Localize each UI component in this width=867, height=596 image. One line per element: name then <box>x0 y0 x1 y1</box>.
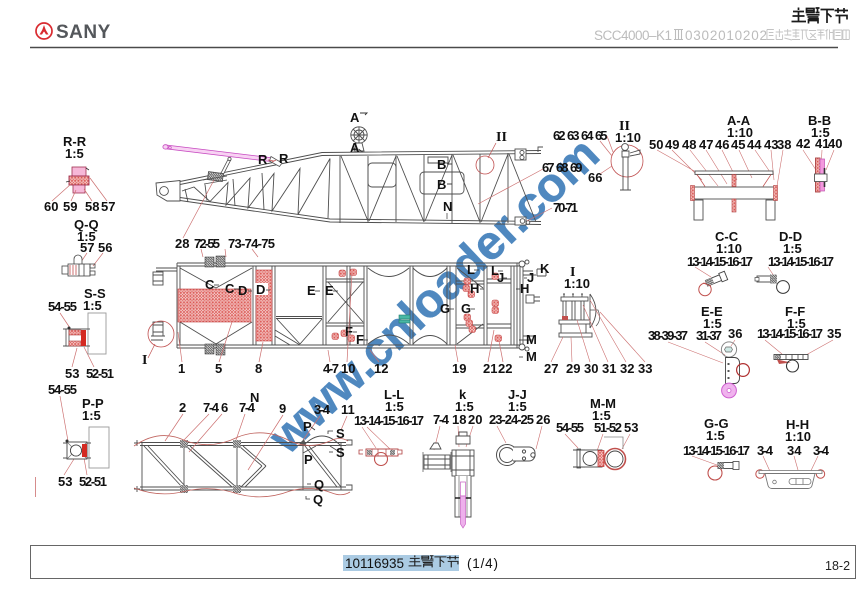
svg-text:3-4: 3-4 <box>757 443 774 458</box>
svg-text:10: 10 <box>341 361 355 376</box>
svg-text:A: A <box>350 110 360 125</box>
svg-text:D: D <box>238 283 247 298</box>
svg-text:9: 9 <box>279 401 286 416</box>
svg-text:31: 31 <box>602 361 616 376</box>
svg-text:5: 5 <box>215 361 222 376</box>
svg-text:50: 50 <box>649 137 663 152</box>
svg-text:B: B <box>437 177 446 192</box>
svg-text:11: 11 <box>341 402 355 417</box>
svg-text:13-14-15-16-17: 13-14-15-16-17 <box>683 443 750 458</box>
svg-text:68: 68 <box>556 160 569 175</box>
svg-text:40: 40 <box>828 136 842 151</box>
svg-text:7-4: 7-4 <box>239 400 256 415</box>
svg-text:H: H <box>470 281 479 296</box>
svg-text:4-7: 4-7 <box>323 361 339 376</box>
svg-text:32: 32 <box>620 361 634 376</box>
svg-text:7-4: 7-4 <box>203 400 220 415</box>
svg-text:B: B <box>437 157 446 172</box>
svg-text:L: L <box>467 262 475 277</box>
svg-text:P: P <box>303 419 312 434</box>
svg-text:R: R <box>258 152 268 167</box>
svg-text:46: 46 <box>715 137 729 152</box>
svg-text:2: 2 <box>179 400 186 415</box>
svg-text:49: 49 <box>665 137 679 152</box>
svg-text:1:5: 1:5 <box>83 298 102 313</box>
svg-text:53: 53 <box>65 366 79 381</box>
svg-text:54-55: 54-55 <box>556 420 584 435</box>
svg-text:21: 21 <box>483 361 497 376</box>
svg-text:29: 29 <box>566 361 580 376</box>
svg-text:J: J <box>497 270 504 285</box>
svg-text:65: 65 <box>595 128 608 143</box>
svg-text:53: 53 <box>58 474 72 489</box>
svg-text:7-4: 7-4 <box>433 412 450 427</box>
svg-text:12: 12 <box>374 361 388 376</box>
svg-text:42: 42 <box>796 136 810 151</box>
svg-text:3-4: 3-4 <box>314 402 331 417</box>
svg-text:38: 38 <box>777 137 791 152</box>
svg-text:20: 20 <box>468 412 482 427</box>
svg-text:K: K <box>540 261 550 276</box>
svg-text:72-55: 72-55 <box>194 236 220 251</box>
svg-text:26: 26 <box>536 412 550 427</box>
svg-text:8: 8 <box>255 361 262 376</box>
svg-text:62: 62 <box>553 128 566 143</box>
svg-text:G: G <box>440 301 450 316</box>
svg-text:69: 69 <box>570 160 583 175</box>
svg-text:SANY: SANY <box>56 22 111 43</box>
svg-text:Q: Q <box>313 492 323 507</box>
svg-text:70-71: 70-71 <box>553 200 578 215</box>
svg-text:C: C <box>225 281 235 296</box>
svg-text:G: G <box>461 301 471 316</box>
svg-text:C: C <box>205 277 215 292</box>
svg-text:18-2: 18-2 <box>825 559 850 573</box>
svg-text:F: F <box>356 332 364 347</box>
svg-text:P: P <box>304 452 313 467</box>
svg-text:1:5: 1:5 <box>385 399 404 414</box>
svg-text:N: N <box>443 199 452 214</box>
svg-text:II: II <box>496 130 507 145</box>
svg-text:34: 34 <box>787 443 802 458</box>
svg-text:33: 33 <box>638 361 652 376</box>
svg-text:D: D <box>256 282 265 297</box>
svg-text:60: 60 <box>44 199 58 214</box>
svg-text:10116935: 10116935 <box>345 556 404 571</box>
svg-text:6: 6 <box>221 400 228 415</box>
svg-text:54-55: 54-55 <box>48 299 77 314</box>
svg-text:19: 19 <box>452 361 466 376</box>
svg-text:13-14-15-16-17: 13-14-15-16-17 <box>757 326 823 341</box>
svg-text:0302010202: 0302010202 <box>685 28 767 43</box>
svg-text:23-24-25: 23-24-25 <box>489 412 534 427</box>
svg-text:31-37: 31-37 <box>696 328 722 343</box>
svg-text:1:5: 1:5 <box>65 146 84 161</box>
svg-text:73-74-75: 73-74-75 <box>228 236 275 251</box>
svg-text:58: 58 <box>85 199 99 214</box>
svg-text:Q: Q <box>314 477 324 492</box>
svg-text:13-14-15-16-17: 13-14-15-16-17 <box>354 413 424 428</box>
svg-text:1: 1 <box>178 361 185 376</box>
svg-text:66: 66 <box>588 170 602 185</box>
svg-text:67: 67 <box>542 160 555 175</box>
svg-text:S: S <box>336 426 345 441</box>
svg-text:J: J <box>527 270 534 285</box>
svg-text:38-39-37: 38-39-37 <box>648 328 688 343</box>
svg-text:48: 48 <box>682 137 696 152</box>
svg-text:52-51: 52-51 <box>86 366 114 381</box>
svg-text:3-4: 3-4 <box>813 443 830 458</box>
svg-text:57: 57 <box>101 199 115 214</box>
svg-text:36: 36 <box>728 326 742 341</box>
svg-text:13-14-15-16-17: 13-14-15-16-17 <box>768 254 834 269</box>
svg-text:E: E <box>325 283 334 298</box>
svg-text:1:10: 1:10 <box>785 429 811 444</box>
svg-text:44: 44 <box>747 137 762 152</box>
svg-text:63: 63 <box>567 128 580 143</box>
svg-text:28: 28 <box>175 236 189 251</box>
svg-text:35: 35 <box>827 326 841 341</box>
svg-text:45: 45 <box>731 137 745 152</box>
svg-text:A: A <box>350 140 360 155</box>
svg-text:SCC4000–K1: SCC4000–K1 <box>594 28 672 43</box>
svg-text:M: M <box>526 332 537 347</box>
svg-text:18: 18 <box>452 412 466 427</box>
svg-text:47: 47 <box>699 137 713 152</box>
svg-text:1:10: 1:10 <box>564 276 590 291</box>
svg-text:I: I <box>142 353 147 368</box>
svg-text:54-55: 54-55 <box>48 382 77 397</box>
svg-text:59: 59 <box>63 199 77 214</box>
svg-text:57: 57 <box>80 240 94 255</box>
svg-text:M: M <box>526 349 537 364</box>
svg-text:52-51: 52-51 <box>79 474 107 489</box>
svg-text:R: R <box>279 151 289 166</box>
svg-text:53: 53 <box>624 420 638 435</box>
svg-text:1:10: 1:10 <box>615 130 641 145</box>
svg-text:27: 27 <box>544 361 558 376</box>
svg-text:S: S <box>336 445 345 460</box>
svg-text:1:5: 1:5 <box>706 428 725 443</box>
svg-text:64: 64 <box>581 128 594 143</box>
svg-text:E: E <box>307 283 316 298</box>
svg-text:13-14-15-16-17: 13-14-15-16-17 <box>687 254 753 269</box>
svg-text:51-52: 51-52 <box>594 420 622 435</box>
svg-text:1:5: 1:5 <box>82 408 101 423</box>
svg-text:(1/4): (1/4) <box>467 556 498 571</box>
svg-text:22: 22 <box>498 361 512 376</box>
svg-text:56: 56 <box>98 240 112 255</box>
svg-text:30: 30 <box>584 361 598 376</box>
